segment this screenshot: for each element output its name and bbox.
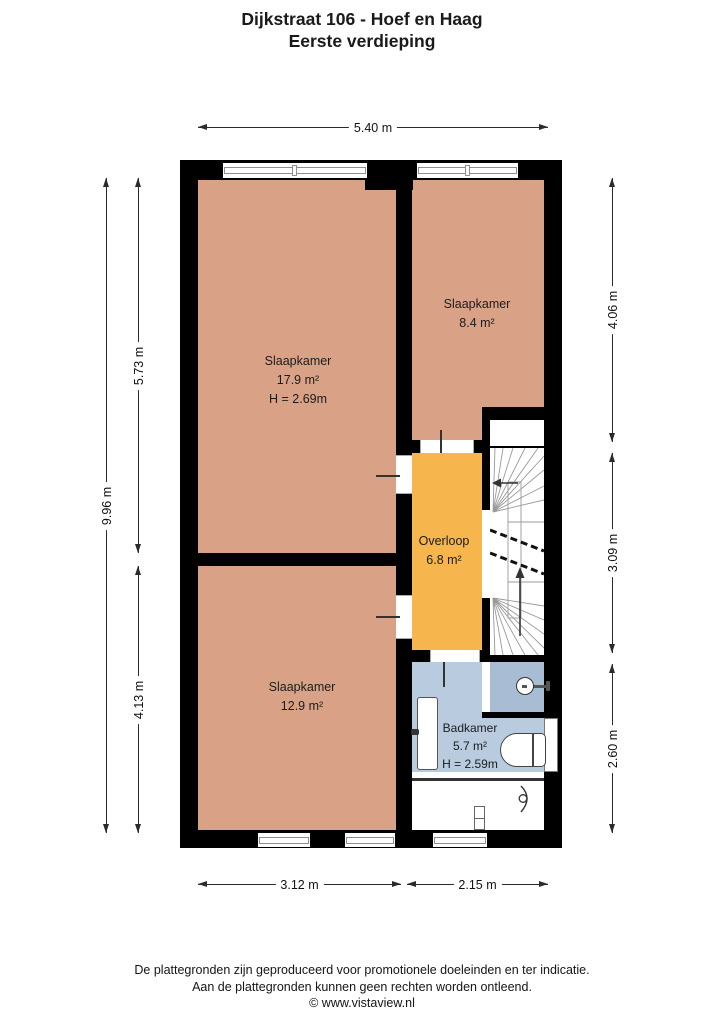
window-frame: [259, 837, 309, 844]
wall-interior-vertical-b: [396, 492, 412, 595]
dimension-right-lower: 2.60 m: [612, 664, 613, 833]
wall-bedroom2-south-left: [412, 440, 420, 453]
dimension-right-middle: 3.09 m: [612, 453, 613, 653]
wall-shower-bottom: [482, 712, 544, 718]
arrowhead: [609, 664, 615, 673]
arrowhead: [103, 178, 109, 187]
door-opening-badkamer: [430, 650, 480, 662]
disclaimer-line-1: De plattegronden zijn geproduceerd voor …: [0, 962, 724, 979]
wall-interior-vertical-c: [396, 637, 412, 830]
room-label-slaapkamer-2: Slaapkamer 8.4 m²: [444, 295, 511, 333]
arrowhead: [609, 644, 615, 653]
window: [345, 833, 395, 847]
room-name: Slaapkamer: [265, 352, 332, 371]
room-area: 8.4 m²: [444, 314, 511, 333]
dimension-label: 4.13 m: [132, 675, 146, 723]
room-name: Slaapkamer: [444, 295, 511, 314]
arrowhead: [103, 824, 109, 833]
dimension-bottom-right: 2.15 m: [407, 884, 548, 885]
room-label-slaapkamer-1: Slaapkamer 17.9 m² H = 2.69m: [265, 352, 332, 409]
arrowhead: [135, 566, 141, 575]
room-area: 17.9 m²: [265, 371, 332, 390]
toilet-tank-line: [532, 734, 534, 766]
room-area: 12.9 m²: [269, 697, 336, 716]
dimension-label: 5.40 m: [349, 121, 397, 135]
door-leaf-slaapkamer-3: [376, 616, 400, 618]
dimension-top: 5.40 m: [198, 127, 548, 128]
room-ceiling-height: H = 2.59m: [442, 755, 498, 773]
arrowhead: [539, 124, 548, 130]
window: [258, 833, 310, 847]
room-slaapkamer-2-floor: [412, 180, 544, 407]
window: [223, 163, 367, 178]
room-label-slaapkamer-3: Slaapkamer 12.9 m²: [269, 678, 336, 716]
shower-knob: [546, 681, 550, 691]
wall-interior-vertical-a: [396, 180, 412, 455]
dimension-label: 9.96 m: [100, 481, 114, 529]
room-label-overloop: Overloop 6.8 m²: [419, 532, 470, 570]
fixture-line: [475, 818, 484, 819]
wall-recess-top: [482, 407, 544, 420]
stair-recess: [490, 420, 544, 448]
copyright: © www.vistaview.nl: [0, 995, 724, 1012]
arrowhead: [392, 881, 401, 887]
disclaimer-line-2: Aan de plattegronden kunnen geen rechten…: [0, 979, 724, 996]
arrowhead: [609, 453, 615, 462]
room-name: Overloop: [419, 532, 470, 551]
arrowhead: [609, 433, 615, 442]
door-leaf-badkamer: [443, 662, 445, 687]
arrowhead: [198, 881, 207, 887]
room-name: Slaapkamer: [269, 678, 336, 697]
stair-opening: [482, 510, 490, 598]
staircase: [490, 448, 544, 658]
arrowhead: [198, 124, 207, 130]
dimension-label: 3.09 m: [606, 529, 620, 577]
toilet: [500, 733, 546, 767]
room-ceiling-height: H = 2.69m: [265, 390, 332, 409]
window: [417, 163, 518, 178]
room-slaapkamer-2-floor-tongue: [412, 407, 482, 440]
door-leaf-slaapkamer-2: [440, 430, 442, 453]
arrowhead: [407, 881, 416, 887]
door-opening-slaapkamer-2: [420, 440, 474, 453]
dimension-left-lower: 4.13 m: [138, 566, 139, 833]
duct-niche: [544, 718, 558, 772]
arrowhead: [135, 544, 141, 553]
room-area: 6.8 m²: [419, 551, 470, 570]
window-post: [292, 165, 297, 176]
sink: [514, 784, 536, 814]
shower-head-dot: [522, 685, 527, 688]
window-post: [465, 165, 470, 176]
dimension-bottom-left: 3.12 m: [198, 884, 401, 885]
room-name: Badkamer: [442, 719, 498, 737]
arrowhead: [135, 824, 141, 833]
floor-plan: Slaapkamer 17.9 m² H = 2.69m Slaapkamer …: [0, 0, 724, 1024]
door-leaf-slaapkamer-1: [376, 475, 400, 477]
arrowhead: [609, 824, 615, 833]
window-frame: [434, 837, 486, 844]
room-label-badkamer: Badkamer 5.7 m² H = 2.59m: [442, 719, 498, 773]
dimension-right-upper: 4.06 m: [612, 178, 613, 442]
arrowhead: [135, 178, 141, 187]
dimension-label: 2.60 m: [606, 724, 620, 772]
room-area: 5.7 m²: [442, 737, 498, 755]
dimension-label: 3.12 m: [275, 878, 323, 892]
arrowhead: [609, 178, 615, 187]
dimension-label: 5.73 m: [132, 341, 146, 389]
radiator: [417, 697, 438, 770]
dimension-left-outer: 9.96 m: [106, 178, 107, 833]
wall-left: [180, 160, 198, 848]
arrowhead: [539, 881, 548, 887]
dimension-label: 4.06 m: [606, 286, 620, 334]
radiator-valve: [411, 729, 419, 735]
disclaimer: De plattegronden zijn geproduceerd voor …: [0, 962, 724, 1012]
wall-overloop-badkamer-left: [396, 650, 430, 662]
floor-plan-page: Dijkstraat 106 - Hoef en Haag Eerste ver…: [0, 0, 724, 1024]
window-post-fixture: [474, 806, 485, 830]
window: [433, 833, 487, 847]
dimension-label: 2.15 m: [453, 878, 501, 892]
window-frame: [346, 837, 394, 844]
wall-bedrooms-divider: [198, 553, 412, 566]
dimension-left-upper: 5.73 m: [138, 178, 139, 553]
